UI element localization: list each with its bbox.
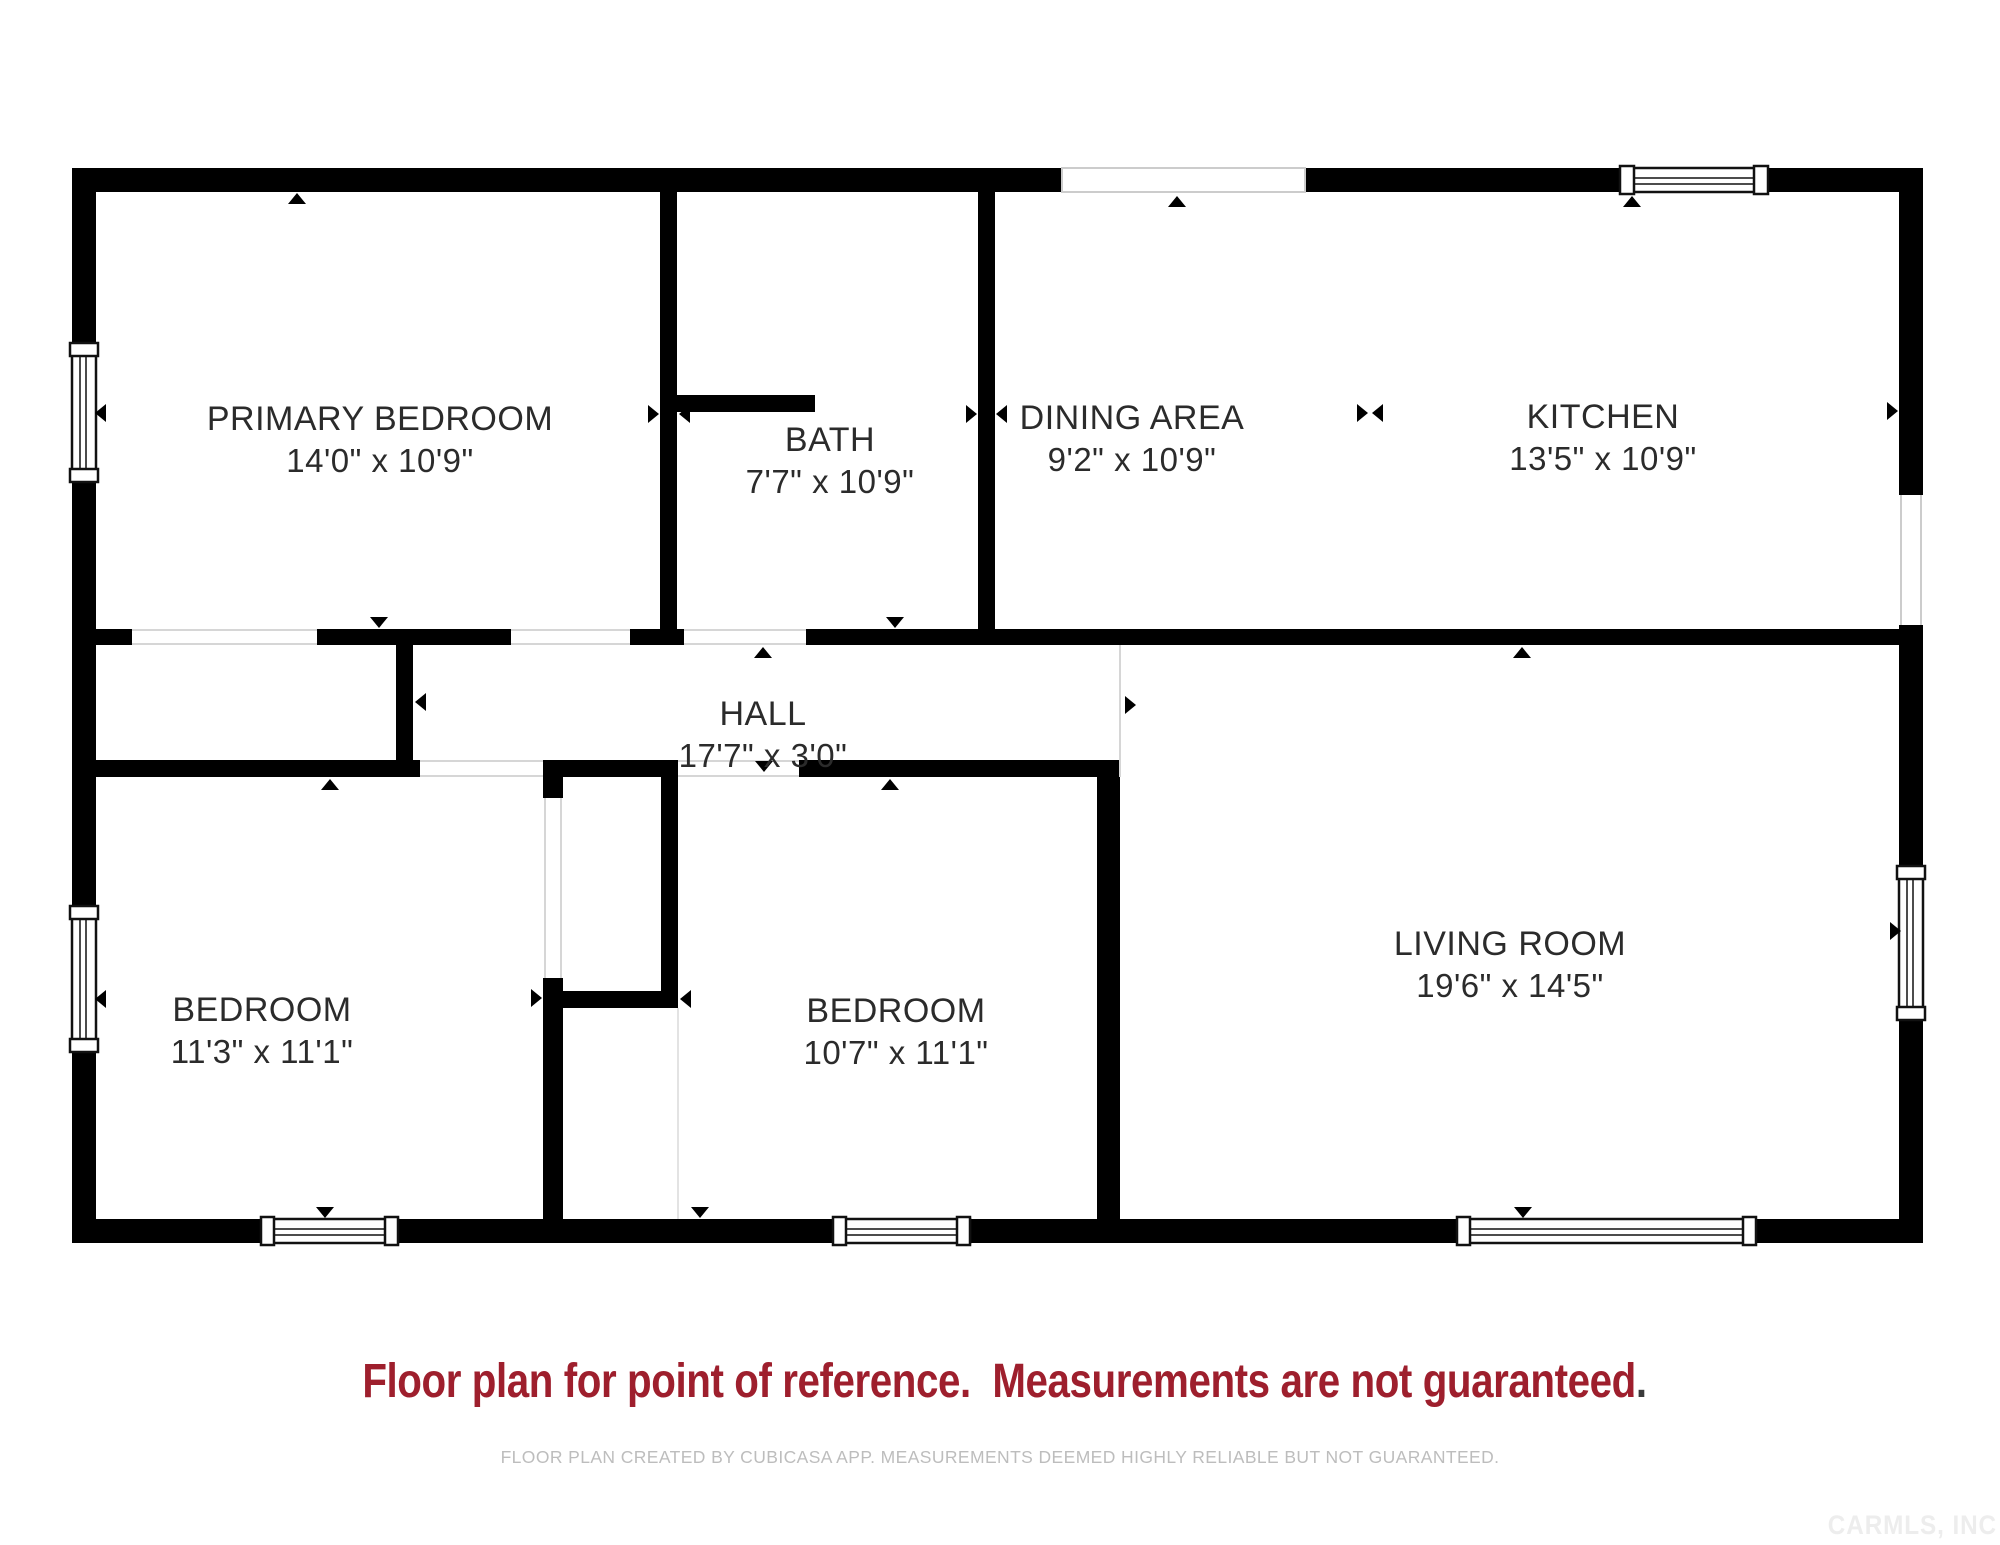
wall-bedrooms-divider <box>543 978 563 1219</box>
window-living-right <box>1897 866 1925 1020</box>
measure-marker-icon <box>680 990 691 1008</box>
floor-plan-canvas <box>0 0 2000 1545</box>
windows <box>70 166 1925 1245</box>
entry-opening <box>1062 168 1305 192</box>
disclaimer-period: . <box>1636 1355 1647 1408</box>
room-dims: 9'2" x 10'9" <box>1020 439 1245 481</box>
room-name: BEDROOM <box>803 990 988 1032</box>
disclaimer-text: Floor plan for point of reference. Measu… <box>0 1336 2000 1409</box>
window-bedroom1-left <box>70 906 98 1052</box>
window-bedroom1-bottom <box>261 1217 398 1245</box>
window-living-bottom <box>1457 1217 1756 1245</box>
open-boundary-icon <box>1357 404 1383 422</box>
wall-mid-b <box>317 629 511 645</box>
room-name: PRIMARY BEDROOM <box>207 398 553 440</box>
door-marker-icon <box>1623 196 1641 207</box>
room-name: LIVING ROOM <box>1394 923 1626 965</box>
room-dims: 19'6" x 14'5" <box>1394 965 1626 1007</box>
wall-living-left <box>1097 777 1120 1219</box>
exterior-walls <box>72 168 1923 1243</box>
window-bedroom2-bottom <box>833 1217 970 1245</box>
room-dims: 11'3" x 11'1" <box>171 1031 354 1073</box>
kitchen-side-opening <box>1899 495 1923 625</box>
door-marker-icon <box>370 617 388 628</box>
wall-mid-d <box>806 629 1899 645</box>
door-marker-icon <box>754 647 772 658</box>
wall-closet-bottom <box>543 991 678 1008</box>
window-primary-left <box>70 343 98 482</box>
measure-marker-icon <box>531 989 542 1007</box>
room-dims: 10'7" x 11'1" <box>803 1032 988 1074</box>
wall-hall-bottom-b <box>543 760 678 777</box>
room-label-hall: HALL 17'7" x 3'0" <box>679 693 848 777</box>
door-marker-icon <box>288 193 306 204</box>
wall-right <box>1899 168 1923 1243</box>
measure-marker-icon <box>1887 402 1898 420</box>
footer-note: FLOOR PLAN CREATED BY CUBICASA APP. MEAS… <box>0 1447 2000 1468</box>
door-marker-icon <box>321 779 339 790</box>
door-marker-icon <box>316 1207 334 1218</box>
wall-bath-right <box>978 192 995 645</box>
door-marker-icon <box>1513 647 1531 658</box>
door-marker-icon <box>886 617 904 628</box>
door-marker-icon <box>881 779 899 790</box>
measure-marker-icon <box>966 405 977 423</box>
window-kitchen-top <box>1620 166 1768 194</box>
door-marker-icon <box>1514 1207 1532 1218</box>
room-label-bath: BATH 7'7" x 10'9" <box>746 419 915 503</box>
room-name: BEDROOM <box>171 989 354 1031</box>
wall-mid-c <box>630 629 684 645</box>
direction-markers <box>95 193 1901 1218</box>
room-name: DINING AREA <box>1020 397 1245 439</box>
room-label-primary-bedroom: PRIMARY BEDROOM 14'0" x 10'9" <box>207 398 553 482</box>
room-name: BATH <box>746 419 915 461</box>
room-dims: 13'5" x 10'9" <box>1509 438 1696 480</box>
measure-marker-icon <box>415 693 426 711</box>
room-label-living-room: LIVING ROOM 19'6" x 14'5" <box>1394 923 1626 1007</box>
room-dims: 7'7" x 10'9" <box>746 461 915 503</box>
room-label-kitchen: KITCHEN 13'5" x 10'9" <box>1509 396 1696 480</box>
room-dims: 14'0" x 10'9" <box>207 440 553 482</box>
room-label-bedroom-middle: BEDROOM 10'7" x 11'1" <box>803 990 988 1074</box>
wall-bath-stub <box>677 395 815 412</box>
disclaimer-main: Floor plan for point of reference. Measu… <box>362 1355 1636 1408</box>
wall-bath-left <box>660 192 677 645</box>
wall-hall-west-end <box>396 645 413 760</box>
room-label-bedroom-left: BEDROOM 11'3" x 11'1" <box>171 989 354 1073</box>
watermark: CARMLS, INC <box>1828 1510 1997 1541</box>
door-marker-icon <box>1168 196 1186 207</box>
door-opening-lines <box>132 630 1120 978</box>
floor-plan-page: { "plan": { "rooms": [ {"name": "PRIMARY… <box>0 0 2000 1545</box>
wall-left <box>72 168 96 1243</box>
wall-hall-bottom-a <box>96 760 420 777</box>
measure-marker-icon <box>648 405 659 423</box>
room-name: HALL <box>679 693 848 735</box>
wall-closet-right <box>661 777 678 1008</box>
wall-closet-left-top-stub <box>543 760 563 798</box>
room-label-dining-area: DINING AREA 9'2" x 10'9" <box>1020 397 1245 481</box>
interior-walls <box>96 192 1899 1219</box>
wall-mid-a <box>96 629 132 645</box>
door-marker-icon <box>691 1207 709 1218</box>
room-name: KITCHEN <box>1509 396 1696 438</box>
room-dims: 17'7" x 3'0" <box>679 735 848 777</box>
measure-marker-icon <box>996 405 1007 423</box>
measure-marker-icon <box>1125 696 1136 714</box>
